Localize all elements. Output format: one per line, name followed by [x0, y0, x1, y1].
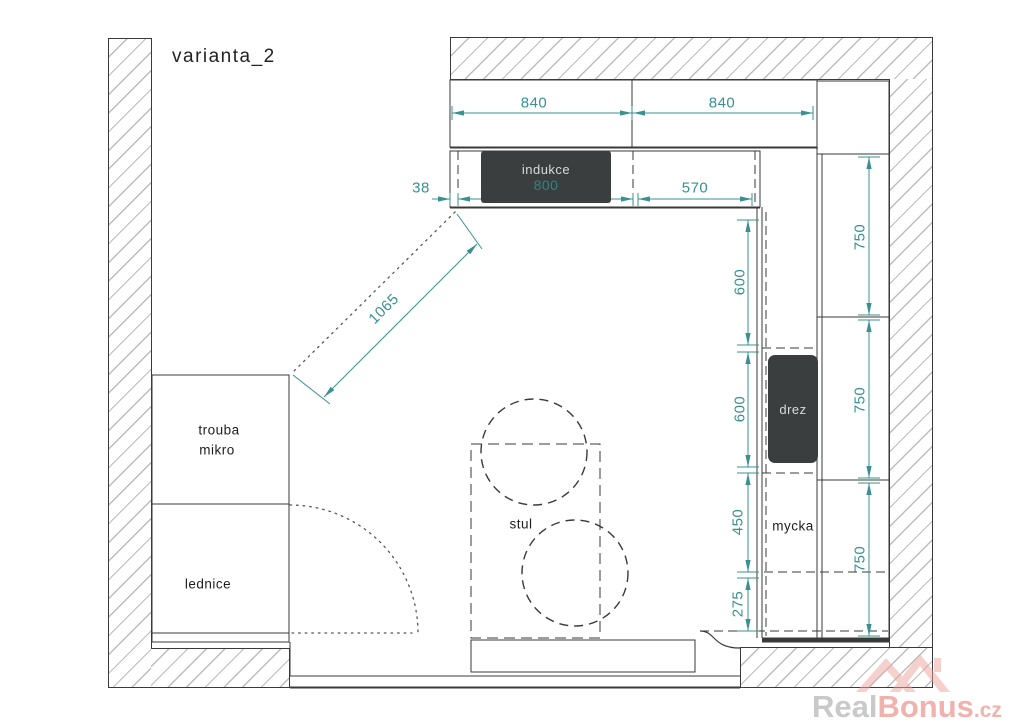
plan-linework [0, 0, 1024, 726]
watermark-real: Real [812, 689, 877, 724]
cooktop-box: indukce 800 [481, 151, 611, 203]
dim-840-right: 840 [709, 95, 736, 112]
watermark-bonus: Bonus [877, 689, 973, 724]
watermark-logo [848, 644, 958, 694]
table-label: stul [509, 517, 532, 532]
dim-450: 450 [730, 509, 747, 536]
bench [471, 640, 695, 672]
dishwasher-label: mycka [772, 519, 814, 534]
cooktop-width-dim: 800 [534, 177, 559, 193]
door-swing-arc [290, 505, 418, 633]
microwave-label: mikro [199, 443, 235, 458]
dim-750-middle: 750 [852, 387, 869, 414]
dim-750-top: 750 [852, 224, 869, 251]
kitchen-floor-plan: varianta_2 indukce 800 drez trouba mikro… [0, 0, 1024, 726]
dim-840-left: 840 [521, 95, 548, 112]
sink-label: drez [779, 402, 806, 417]
rooftops-icon [856, 654, 950, 692]
cabinet-base-bar [762, 638, 890, 643]
appliance-plinth [152, 633, 289, 642]
dim-600-lower: 600 [732, 396, 749, 423]
dim-38: 38 [412, 180, 430, 197]
dim-275: 275 [730, 591, 747, 618]
watermark-text: RealBonus.cz [812, 689, 1002, 725]
corner-upper-cabinet [817, 81, 889, 154]
dotted-lines [290, 212, 455, 633]
dim-570: 570 [682, 180, 709, 197]
diagonal-reference-line [292, 212, 455, 373]
oven-label: trouba [198, 423, 239, 438]
plan-title: varianta_2 [172, 46, 276, 68]
chair-circle-top [481, 399, 587, 505]
sink-box: drez [768, 355, 818, 463]
chair-circle-bottom [522, 520, 628, 626]
dim-600-upper: 600 [732, 269, 749, 296]
dim-750-bottom: 750 [852, 546, 869, 573]
watermark-tld: .cz [974, 699, 1002, 722]
hidden-edges [458, 151, 888, 638]
cooktop-label: indukce [522, 162, 570, 177]
fridge-label: lednice [185, 577, 231, 592]
wall-connector-curve [700, 631, 740, 648]
